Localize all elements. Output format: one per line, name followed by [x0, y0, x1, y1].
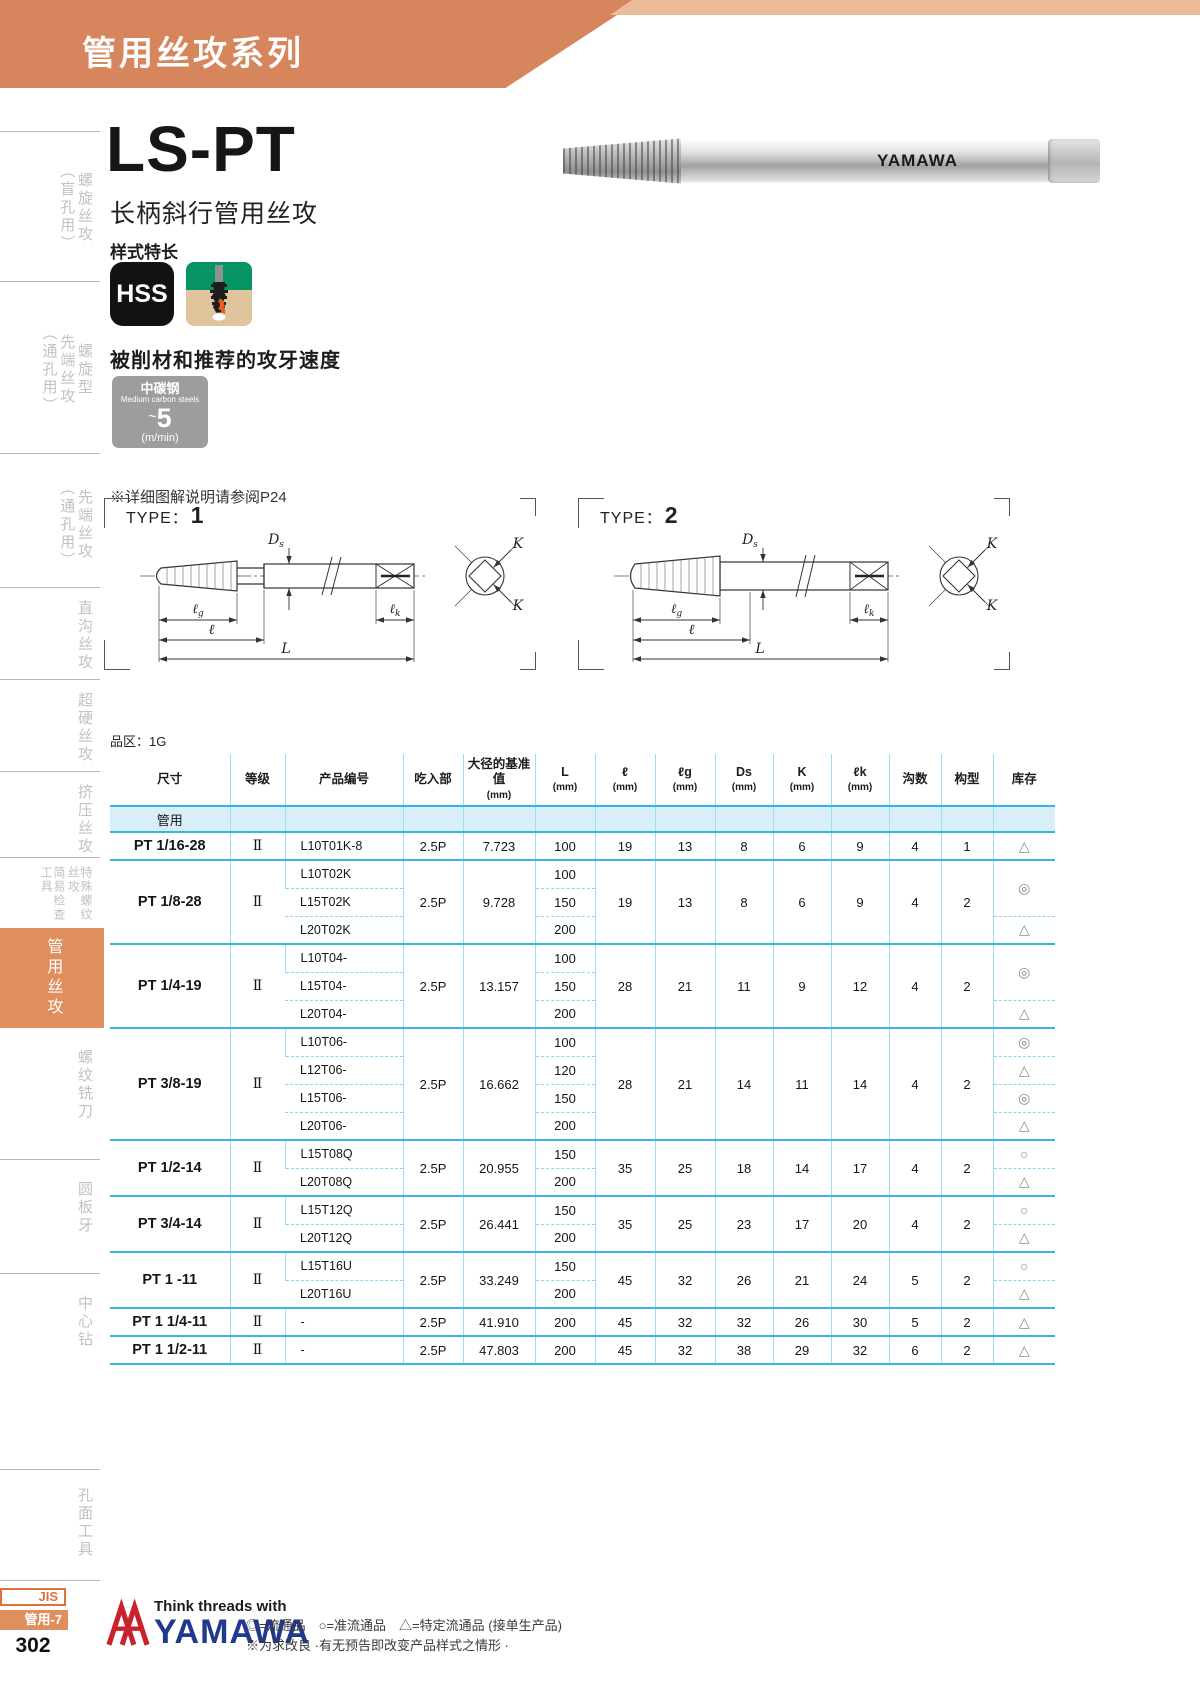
- square-length-cell: 32: [831, 1336, 889, 1364]
- square-size-cell: 11: [773, 1028, 831, 1140]
- column-header: 大径的基准值(mm): [463, 754, 535, 806]
- chamfer-cell: 2.5P: [403, 1252, 463, 1308]
- square-size-cell: 21: [773, 1252, 831, 1308]
- product-code-cell: L10T06-: [285, 1028, 403, 1056]
- overall-length-cell: 100: [535, 1028, 595, 1056]
- product-subtitle: 长柄斜行管用丝攻: [110, 194, 318, 230]
- major-dia-cell: 33.249: [463, 1252, 535, 1308]
- sidebar-item-kongmian-gongju: 孔面工具: [0, 1478, 104, 1568]
- column-header: ℓk(mm): [831, 754, 889, 806]
- sidebar-item-label: 超硬丝攻: [76, 692, 92, 764]
- shank-dia-cell: 14: [715, 1028, 773, 1140]
- chamfer-length-cell: 25: [655, 1140, 715, 1196]
- product-code-cell: L20T06-: [285, 1112, 403, 1140]
- legend-disclaimer: ※为求改良 ·有无预告即改变产品样式之情形 ·: [246, 1636, 646, 1656]
- chamfer-length-cell: 25: [655, 1196, 715, 1252]
- flutes-cell: 6: [889, 1336, 941, 1364]
- product-code-cell: -: [285, 1308, 403, 1336]
- blind-hole-tap-icon: [186, 262, 252, 326]
- overall-length-cell: 150: [535, 1140, 595, 1168]
- shank-dia-cell: 32: [715, 1308, 773, 1336]
- overall-length-cell: 100: [535, 944, 595, 972]
- shank-dia-cell: 8: [715, 860, 773, 944]
- column-header: 尺寸: [110, 754, 230, 806]
- chamfer-cell: 2.5P: [403, 944, 463, 1028]
- flutes-cell: 4: [889, 1140, 941, 1196]
- form-type-cell: 2: [941, 1336, 993, 1364]
- form-type-cell: 2: [941, 1252, 993, 1308]
- stock-symbol-cell: △: [993, 1224, 1055, 1252]
- dimension-diagram-type2: DsℓgℓkℓLKK TYPE：2: [578, 498, 1010, 670]
- stock-symbol-cell: △: [993, 1168, 1055, 1196]
- stock-symbol-cell: △: [993, 1336, 1055, 1364]
- sidebar-item-label: 挤压丝攻: [76, 784, 92, 856]
- product-code-cell: L15T16U: [285, 1252, 403, 1280]
- page-number: 302: [0, 1634, 66, 1658]
- photo-brand-marking: YAMAWA: [877, 151, 958, 171]
- square-length-cell: 17: [831, 1140, 889, 1196]
- form-type-cell: 2: [941, 1196, 993, 1252]
- size-cell: PT 1/2-14: [110, 1140, 230, 1196]
- column-header: L(mm): [535, 754, 595, 806]
- yamawa-monogram-icon: [106, 1598, 150, 1652]
- column-header: K(mm): [773, 754, 831, 806]
- band-label: 管用: [110, 806, 230, 832]
- form-type-cell: 2: [941, 1140, 993, 1196]
- square-length-cell: 24: [831, 1252, 889, 1308]
- overall-length-cell: 120: [535, 1056, 595, 1084]
- features-label: 样式特长: [110, 238, 178, 263]
- thread-length-cell: 45: [595, 1252, 655, 1308]
- form-type-cell: 1: [941, 832, 993, 860]
- stock-symbol-cell: ○: [993, 1252, 1055, 1280]
- size-cell: PT 1/16-28: [110, 832, 230, 860]
- catalog-page: 管用丝攻系列 （盲孔用）螺旋丝攻（通孔用）先端丝攻螺旋型（通孔用）先端丝攻直沟丝…: [0, 0, 1200, 1697]
- product-code-cell: L10T02K: [285, 860, 403, 888]
- major-dia-cell: 20.955: [463, 1140, 535, 1196]
- square-length-cell: 20: [831, 1196, 889, 1252]
- sidebar-item-label: （盲孔用）: [59, 163, 75, 253]
- thread-length-cell: 28: [595, 944, 655, 1028]
- sidebar-item-label: 螺旋型: [76, 343, 92, 397]
- sidebar-item-label: 孔面工具: [76, 1487, 92, 1559]
- grade-cell: Ⅱ: [230, 860, 285, 944]
- chamfer-length-cell: 32: [655, 1336, 715, 1364]
- stock-legend: ◎=流通品 ○=准流通品 △=特定流通品 (接单生产品) ※为求改良 ·有无预告…: [246, 1616, 646, 1655]
- stock-symbol-cell: ◎: [993, 860, 1055, 916]
- overall-length-cell: 150: [535, 1196, 595, 1224]
- svg-text:ℓg: ℓg: [192, 602, 203, 619]
- overall-length-cell: 200: [535, 1224, 595, 1252]
- grade-cell: Ⅱ: [230, 1336, 285, 1364]
- product-code-cell: L20T04-: [285, 1000, 403, 1028]
- shank-dia-cell: 23: [715, 1196, 773, 1252]
- overall-length-cell: 200: [535, 1112, 595, 1140]
- size-cell: PT 3/4-14: [110, 1196, 230, 1252]
- chamfer-cell: 2.5P: [403, 1140, 463, 1196]
- square-size-cell: 14: [773, 1140, 831, 1196]
- table-band-row: 管用: [110, 806, 1055, 832]
- overall-length-cell: 200: [535, 1280, 595, 1308]
- column-header: 吃入部: [403, 754, 463, 806]
- sidebar-item-teshu-luowen-sigong: 简易检查工具特殊螺纹丝攻: [0, 866, 104, 926]
- product-photo: YAMAWA: [563, 114, 1100, 208]
- grade-cell: Ⅱ: [230, 944, 285, 1028]
- major-dia-cell: 9.728: [463, 860, 535, 944]
- stock-symbol-cell: ○: [993, 1140, 1055, 1168]
- sidebar-item-jiya-sigong: 挤压丝攻: [0, 780, 104, 860]
- major-dia-cell: 26.441: [463, 1196, 535, 1252]
- stock-symbol-cell: ◎: [993, 1028, 1055, 1056]
- sidebar-item-luowen-xidao: 螺纹铣刀: [0, 1040, 104, 1130]
- square-length-cell: 12: [831, 944, 889, 1028]
- shank-dia-cell: 11: [715, 944, 773, 1028]
- column-header: 沟数: [889, 754, 941, 806]
- product-code-cell: L15T08Q: [285, 1140, 403, 1168]
- svg-text:Ds: Ds: [741, 532, 758, 550]
- stock-symbol-cell: ○: [993, 1196, 1055, 1224]
- chamfer-length-cell: 13: [655, 860, 715, 944]
- sidebar-item-label: 中心钻: [76, 1295, 92, 1349]
- product-code-cell: L20T08Q: [285, 1168, 403, 1196]
- major-dia-cell: 41.910: [463, 1308, 535, 1336]
- column-header: 库存: [993, 754, 1055, 806]
- svg-text:L: L: [280, 641, 290, 657]
- product-code-cell: L20T12Q: [285, 1224, 403, 1252]
- svg-text:ℓk: ℓk: [390, 602, 401, 619]
- thread-length-cell: 19: [595, 860, 655, 944]
- table-header-row: 尺寸等级产品编号吃入部大径的基准值(mm)L(mm)ℓ(mm)ℓg(mm)Ds(…: [110, 754, 1055, 806]
- legend-symbols: ◎=流通品 ○=准流通品 △=特定流通品 (接单生产品): [246, 1616, 646, 1636]
- speed-unit: (m/min): [112, 432, 208, 444]
- square-size-cell: 6: [773, 832, 831, 860]
- grade-cell: Ⅱ: [230, 1308, 285, 1336]
- series-title: 管用丝攻系列: [82, 26, 304, 75]
- table-row: PT 1/2-14ⅡL15T08Q2.5P20.9551503525181417…: [110, 1140, 1055, 1168]
- shank-dia-cell: 26: [715, 1252, 773, 1308]
- stock-symbol-cell: △: [993, 1056, 1055, 1084]
- chamfer-length-cell: 21: [655, 1028, 715, 1140]
- type2-label: TYPE：2: [600, 502, 679, 529]
- sidebar-item-label: 简易检查工具: [40, 866, 65, 926]
- major-dia-cell: 47.803: [463, 1336, 535, 1364]
- grade-cell: Ⅱ: [230, 1140, 285, 1196]
- chamfer-cell: 2.5P: [403, 832, 463, 860]
- column-header: Ds(mm): [715, 754, 773, 806]
- product-code-cell: L20T16U: [285, 1280, 403, 1308]
- overall-length-cell: 150: [535, 1084, 595, 1112]
- svg-text:ℓ: ℓ: [689, 622, 695, 638]
- table-row: PT 1 -11ⅡL15T16U2.5P33.24915045322621245…: [110, 1252, 1055, 1280]
- column-header: ℓ(mm): [595, 754, 655, 806]
- chamfer-cell: 2.5P: [403, 1028, 463, 1140]
- flutes-cell: 4: [889, 860, 941, 944]
- product-code-cell: L12T06-: [285, 1056, 403, 1084]
- sidebar-item-label: 管用丝攻: [44, 938, 61, 1018]
- stock-symbol-cell: △: [993, 1308, 1055, 1336]
- square-length-cell: 14: [831, 1028, 889, 1140]
- svg-text:K: K: [512, 598, 525, 614]
- svg-text:K: K: [986, 598, 999, 614]
- sidebar-item-chaoying-sigong: 超硬丝攻: [0, 688, 104, 768]
- square-size-cell: 9: [773, 944, 831, 1028]
- product-code-cell: L15T06-: [285, 1084, 403, 1112]
- stock-symbol-cell: ◎: [993, 1084, 1055, 1112]
- photo-shank-section: YAMAWA: [681, 141, 1048, 181]
- size-cell: PT 1 1/4-11: [110, 1308, 230, 1336]
- overall-length-cell: 100: [535, 832, 595, 860]
- overall-length-cell: 200: [535, 1308, 595, 1336]
- sidebar-item-label: 先端丝攻: [59, 334, 75, 406]
- flutes-cell: 5: [889, 1252, 941, 1308]
- sidebar-item-label: （通孔用）: [59, 480, 75, 570]
- hss-label: HSS: [116, 280, 167, 309]
- sidebar-item-label: 特殊螺纹丝攻: [67, 866, 92, 926]
- stock-symbol-cell: △: [993, 1112, 1055, 1140]
- flutes-cell: 4: [889, 832, 941, 860]
- form-type-cell: 2: [941, 860, 993, 944]
- speed-box: 中碳钢 Medium carbon steels ~5 (m/min): [112, 376, 208, 448]
- spec-table: 尺寸等级产品编号吃入部大径的基准值(mm)L(mm)ℓ(mm)ℓg(mm)Ds(…: [110, 754, 1055, 1365]
- column-header: 等级: [230, 754, 285, 806]
- overall-length-cell: 150: [535, 1252, 595, 1280]
- stock-symbol-cell: △: [993, 1000, 1055, 1028]
- form-type-cell: 2: [941, 1028, 993, 1140]
- table-row: PT 1 1/2-11Ⅱ-2.5P47.803200453238293262△: [110, 1336, 1055, 1364]
- sidebar-item-zhongxinzuan: 中心钻: [0, 1282, 104, 1362]
- lot-code-label: 品区：1G: [110, 731, 166, 750]
- sidebar-item-zhigou-sigong: 直沟丝攻: [0, 596, 104, 676]
- thread-length-cell: 19: [595, 832, 655, 860]
- overall-length-cell: 200: [535, 916, 595, 944]
- svg-text:ℓk: ℓk: [864, 602, 875, 619]
- major-dia-cell: 13.157: [463, 944, 535, 1028]
- sidebar-item-luoxuanxing-xianduan-sigong: （通孔用）先端丝攻螺旋型: [0, 290, 104, 450]
- grade-cell: Ⅱ: [230, 1028, 285, 1140]
- size-cell: PT 1/4-19: [110, 944, 230, 1028]
- sidebar-item-luoxuan-sigong-mangkong: （盲孔用）螺旋丝攻: [0, 140, 104, 275]
- sidebar-item-label: 圆板牙: [76, 1181, 92, 1235]
- thread-length-cell: 35: [595, 1196, 655, 1252]
- chamfer-cell: 2.5P: [403, 1308, 463, 1336]
- size-cell: PT 1 1/2-11: [110, 1336, 230, 1364]
- square-length-cell: 9: [831, 860, 889, 944]
- product-code-cell: -: [285, 1336, 403, 1364]
- sidebar-item-label: 先端丝攻: [76, 489, 92, 561]
- stock-symbol-cell: △: [993, 916, 1055, 944]
- grade-cell: Ⅱ: [230, 832, 285, 860]
- product-model-title: LS-PT: [106, 112, 296, 186]
- jis-standard-badge: JIS: [0, 1588, 66, 1606]
- chamfer-length-cell: 32: [655, 1308, 715, 1336]
- chamfer-length-cell: 21: [655, 944, 715, 1028]
- column-header: 构型: [941, 754, 993, 806]
- svg-text:ℓg: ℓg: [671, 602, 682, 619]
- grade-cell: Ⅱ: [230, 1252, 285, 1308]
- table-row: PT 3/8-19ⅡL10T06-2.5P16.6621002821141114…: [110, 1028, 1055, 1056]
- chamfer-cell: 2.5P: [403, 1196, 463, 1252]
- sidebar-item-label: （通孔用）: [41, 325, 57, 415]
- speed-section-heading: 被削材和推荐的攻牙速度: [110, 344, 341, 373]
- table-row: PT 1/16-28ⅡL10T01K-82.5P7.72310019138694…: [110, 832, 1055, 860]
- chamfer-length-cell: 13: [655, 832, 715, 860]
- square-length-cell: 30: [831, 1308, 889, 1336]
- sidebar-item-guanyong-sigong: 管用丝攻: [0, 928, 104, 1028]
- size-cell: PT 1/8-28: [110, 860, 230, 944]
- shank-dia-cell: 18: [715, 1140, 773, 1196]
- table-row: PT 1 1/4-11Ⅱ-2.5P41.910200453232263052△: [110, 1308, 1055, 1336]
- flutes-cell: 4: [889, 1028, 941, 1140]
- table-row: PT 3/4-14ⅡL15T12Q2.5P26.4411503525231720…: [110, 1196, 1055, 1224]
- sidebar-item-label: 螺旋丝攻: [76, 172, 92, 244]
- stock-symbol-cell: △: [993, 1280, 1055, 1308]
- sidebar-item-label: 直沟丝攻: [76, 600, 92, 672]
- flutes-cell: 4: [889, 944, 941, 1028]
- svg-text:L: L: [754, 641, 764, 657]
- product-code-cell: L10T01K-8: [285, 832, 403, 860]
- type1-label: TYPE：1: [126, 502, 205, 529]
- major-dia-cell: 7.723: [463, 832, 535, 860]
- speed-value: ~5: [112, 405, 208, 432]
- product-code-cell: L15T02K: [285, 888, 403, 916]
- stock-symbol-cell: ◎: [993, 944, 1055, 1000]
- thread-length-cell: 35: [595, 1140, 655, 1196]
- chamfer-cell: 2.5P: [403, 860, 463, 944]
- material-name-cn: 中碳钢: [112, 382, 208, 396]
- banner-accent-strip: [598, 0, 1200, 15]
- overall-length-cell: 200: [535, 1000, 595, 1028]
- section-tab-badge: 管用-7: [0, 1610, 68, 1630]
- table-row: PT 1/8-28ⅡL10T02K2.5P9.728100191386942◎: [110, 860, 1055, 888]
- product-code-cell: L10T04-: [285, 944, 403, 972]
- svg-text:K: K: [986, 536, 999, 552]
- svg-text:Ds: Ds: [267, 532, 284, 550]
- thread-length-cell: 28: [595, 1028, 655, 1140]
- form-type-cell: 2: [941, 944, 993, 1028]
- square-size-cell: 29: [773, 1336, 831, 1364]
- grade-cell: Ⅱ: [230, 1196, 285, 1252]
- overall-length-cell: 150: [535, 972, 595, 1000]
- square-size-cell: 6: [773, 860, 831, 944]
- size-cell: PT 1 -11: [110, 1252, 230, 1308]
- sidebar-item-xianduan-sigong-tongkong: （通孔用）先端丝攻: [0, 462, 104, 587]
- overall-length-cell: 150: [535, 888, 595, 916]
- svg-text:ℓ: ℓ: [209, 622, 215, 638]
- chamfer-length-cell: 32: [655, 1252, 715, 1308]
- product-code-cell: L20T02K: [285, 916, 403, 944]
- flutes-cell: 4: [889, 1196, 941, 1252]
- sidebar-divider: [0, 1580, 100, 1581]
- flutes-cell: 5: [889, 1308, 941, 1336]
- product-code-cell: L15T04-: [285, 972, 403, 1000]
- product-code-cell: L15T12Q: [285, 1196, 403, 1224]
- column-header: 产品编号: [285, 754, 403, 806]
- chamfer-cell: 2.5P: [403, 1336, 463, 1364]
- svg-text:K: K: [512, 536, 525, 552]
- overall-length-cell: 200: [535, 1168, 595, 1196]
- spec-table-wrap: 尺寸等级产品编号吃入部大径的基准值(mm)L(mm)ℓ(mm)ℓg(mm)Ds(…: [110, 754, 1055, 1365]
- stock-symbol-cell: △: [993, 832, 1055, 860]
- square-size-cell: 17: [773, 1196, 831, 1252]
- size-cell: PT 3/8-19: [110, 1028, 230, 1140]
- square-size-cell: 26: [773, 1308, 831, 1336]
- major-dia-cell: 16.662: [463, 1028, 535, 1140]
- overall-length-cell: 200: [535, 1336, 595, 1364]
- sidebar-item-yuanbanya: 圆板牙: [0, 1168, 104, 1248]
- thread-length-cell: 45: [595, 1308, 655, 1336]
- shank-dia-cell: 8: [715, 832, 773, 860]
- photo-square-end: [1048, 139, 1100, 183]
- square-length-cell: 9: [831, 832, 889, 860]
- sidebar-item-label: 螺纹铣刀: [76, 1049, 92, 1121]
- photo-thread-section: [563, 137, 681, 185]
- overall-length-cell: 100: [535, 860, 595, 888]
- column-header: ℓg(mm): [655, 754, 715, 806]
- table-row: PT 1/4-19ⅡL10T04-2.5P13.1571002821119124…: [110, 944, 1055, 972]
- form-type-cell: 2: [941, 1308, 993, 1336]
- shank-dia-cell: 38: [715, 1336, 773, 1364]
- hss-material-badge: HSS: [110, 262, 174, 326]
- dimension-diagram-type1: DsℓgℓkℓLKK TYPE：1: [104, 498, 536, 670]
- thread-length-cell: 45: [595, 1336, 655, 1364]
